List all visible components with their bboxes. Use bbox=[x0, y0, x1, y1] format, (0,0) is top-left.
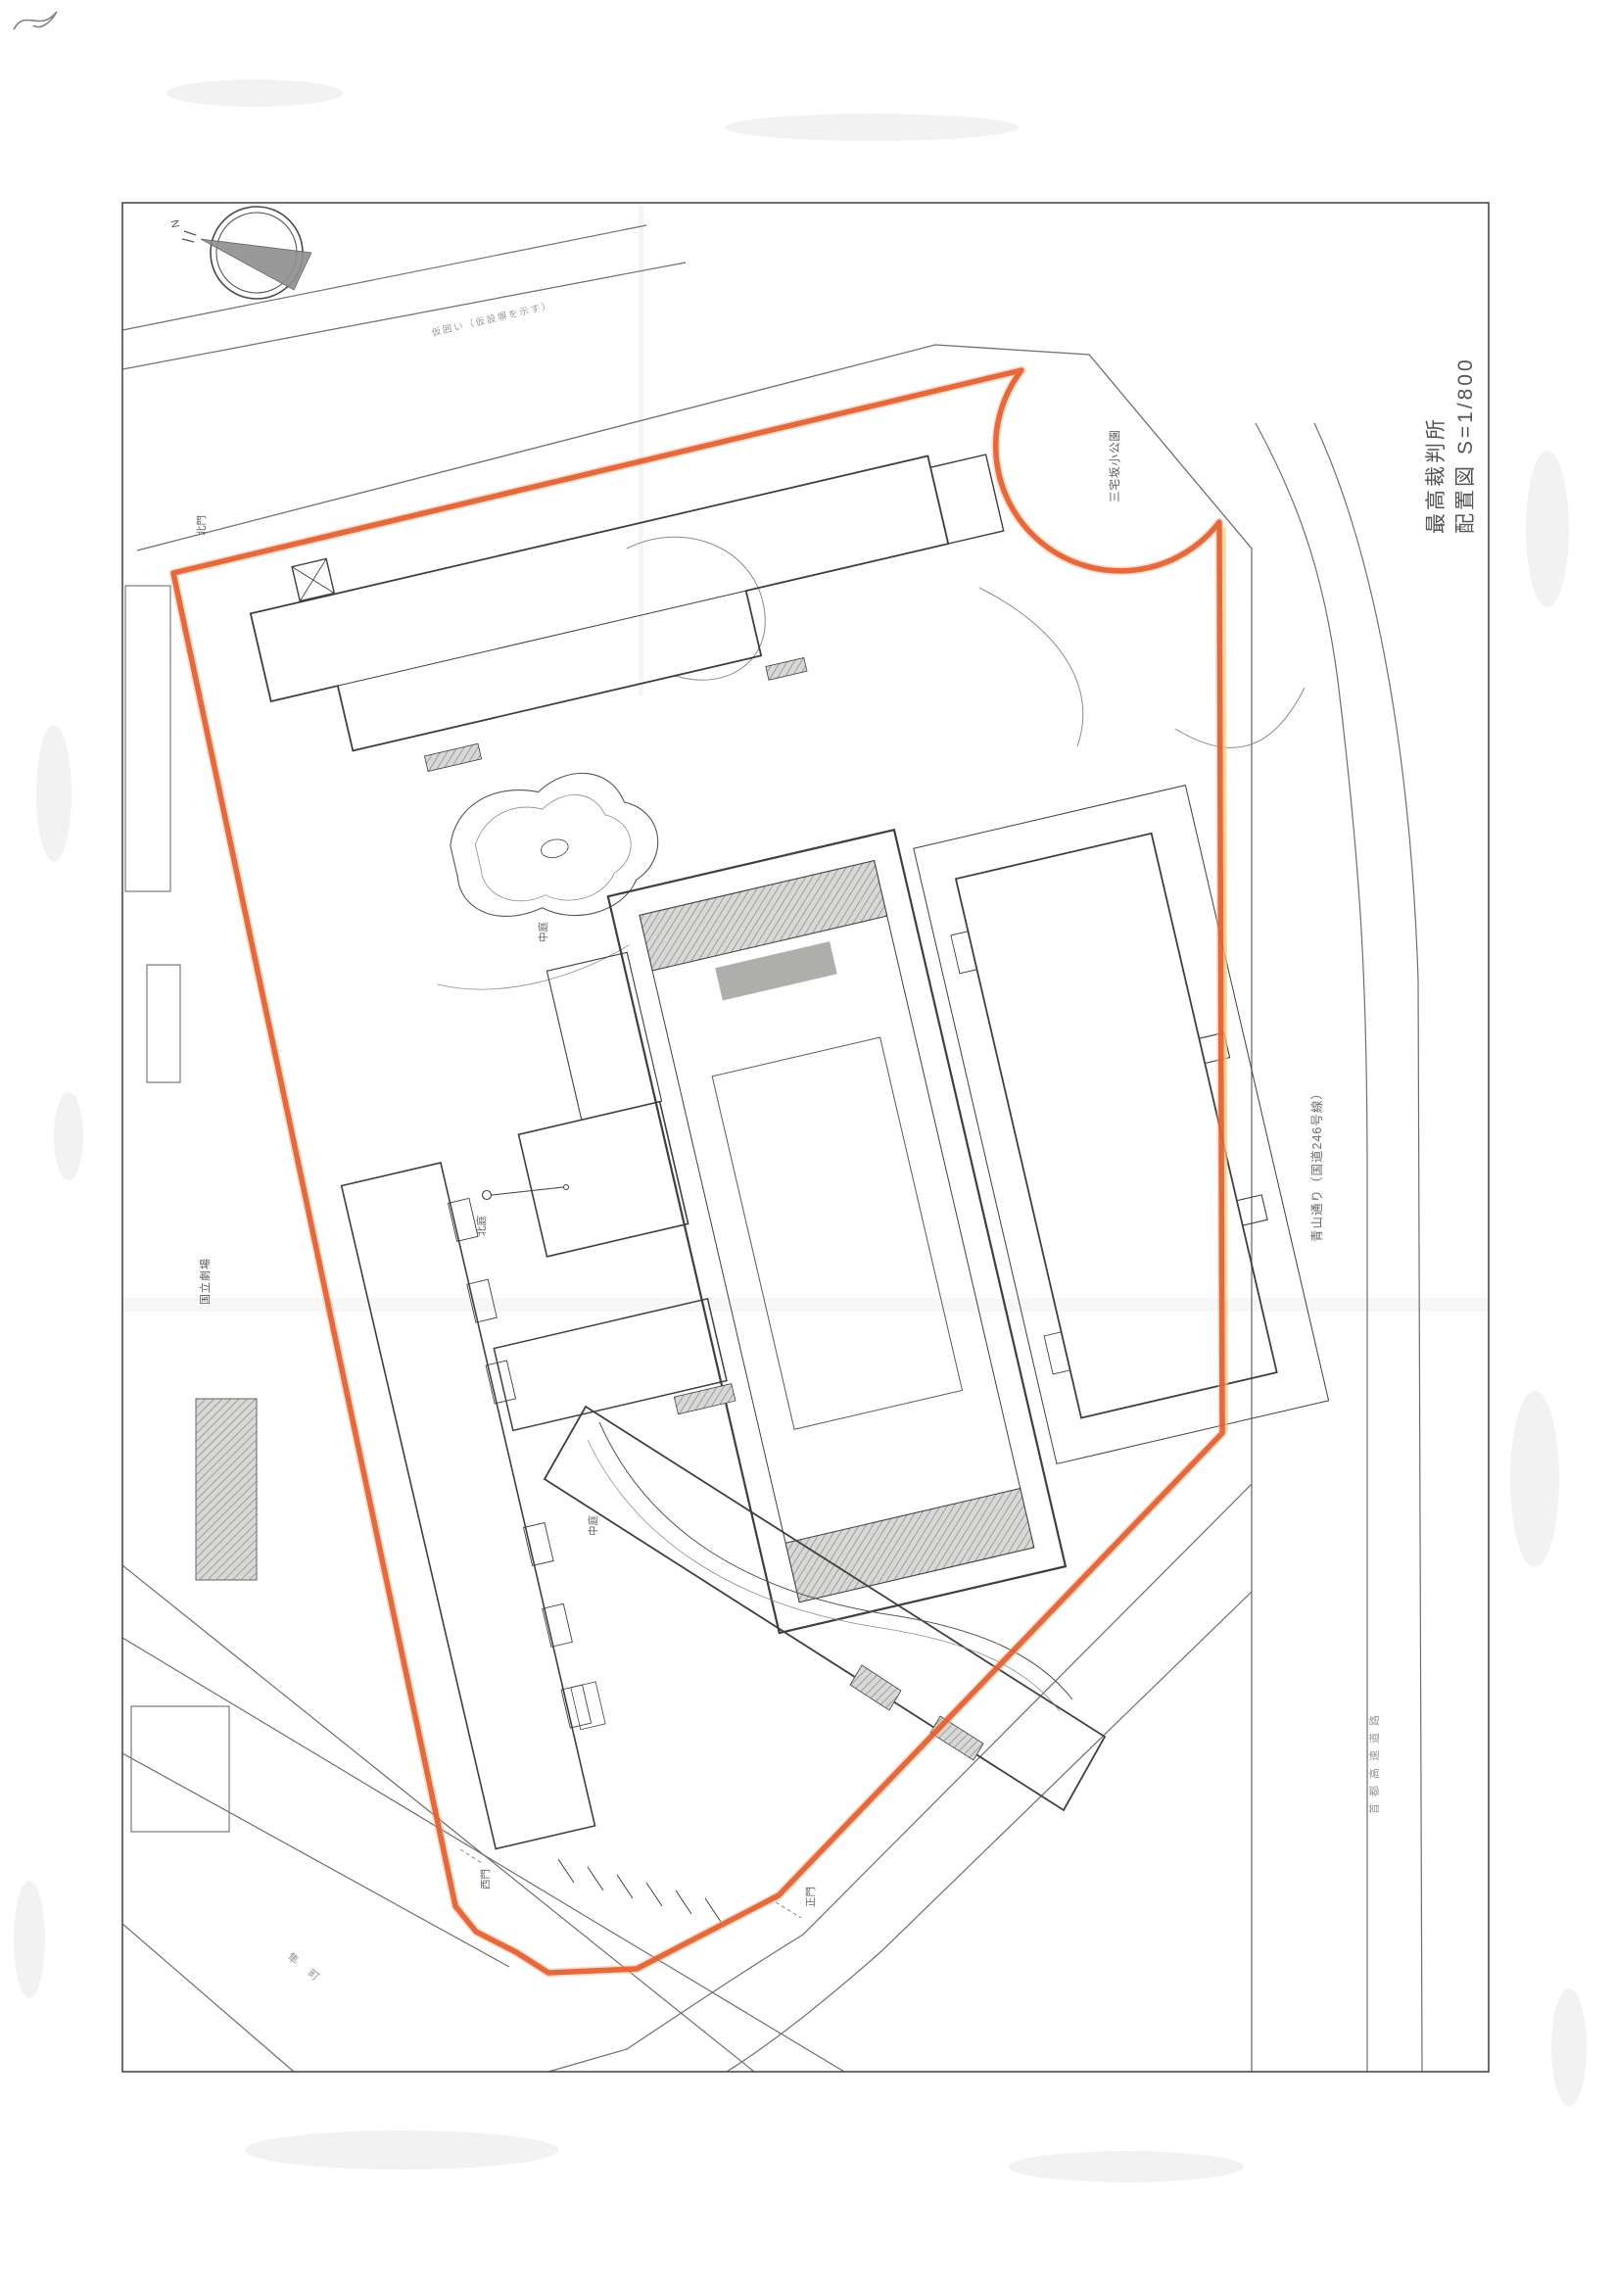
site-label-pond-courtyard: 中庭 bbox=[538, 922, 549, 942]
site-label-main-gate: 正門 bbox=[805, 1887, 817, 1907]
place-label-national-theatre: 国立劇場 bbox=[200, 1258, 213, 1305]
north-arrow-icon bbox=[182, 207, 311, 299]
main-buildings bbox=[203, 381, 1385, 1849]
site-label-north-gate: 北門 bbox=[196, 515, 208, 536]
drawing-border bbox=[122, 203, 1489, 2072]
scan-crease-vertical bbox=[639, 206, 643, 695]
drawing-title-line1: 最高裁判所 bbox=[1422, 357, 1451, 534]
site-label-north-garden: 北庭 bbox=[476, 1216, 488, 1236]
neighbour-buildings bbox=[125, 586, 257, 1832]
scanned-site-plan-page: 最高裁判所 配置図 S=1/800 N 青山通り（国道246号線） 首都高速道路… bbox=[0, 0, 1615, 2296]
garden-curves bbox=[627, 537, 1305, 747]
drawing-title-scale: 配置図 S=1/800 bbox=[1451, 357, 1481, 534]
road-label-expressway: 首都高速道路 bbox=[1369, 1708, 1382, 1814]
place-label-miyakezaka-park: 三宅坂小公園 bbox=[1110, 429, 1122, 502]
site-label-west-gate: 西門 bbox=[480, 1869, 492, 1889]
site-plan-drawing bbox=[0, 0, 1615, 2296]
pen-mark bbox=[14, 12, 57, 29]
drawing-title: 最高裁判所 配置図 S=1/800 bbox=[1422, 357, 1481, 534]
road-label-aoyama-dori: 青山通り（国道246号線） bbox=[1310, 1086, 1324, 1242]
site-label-south-courtyard: 中庭 bbox=[588, 1515, 599, 1536]
